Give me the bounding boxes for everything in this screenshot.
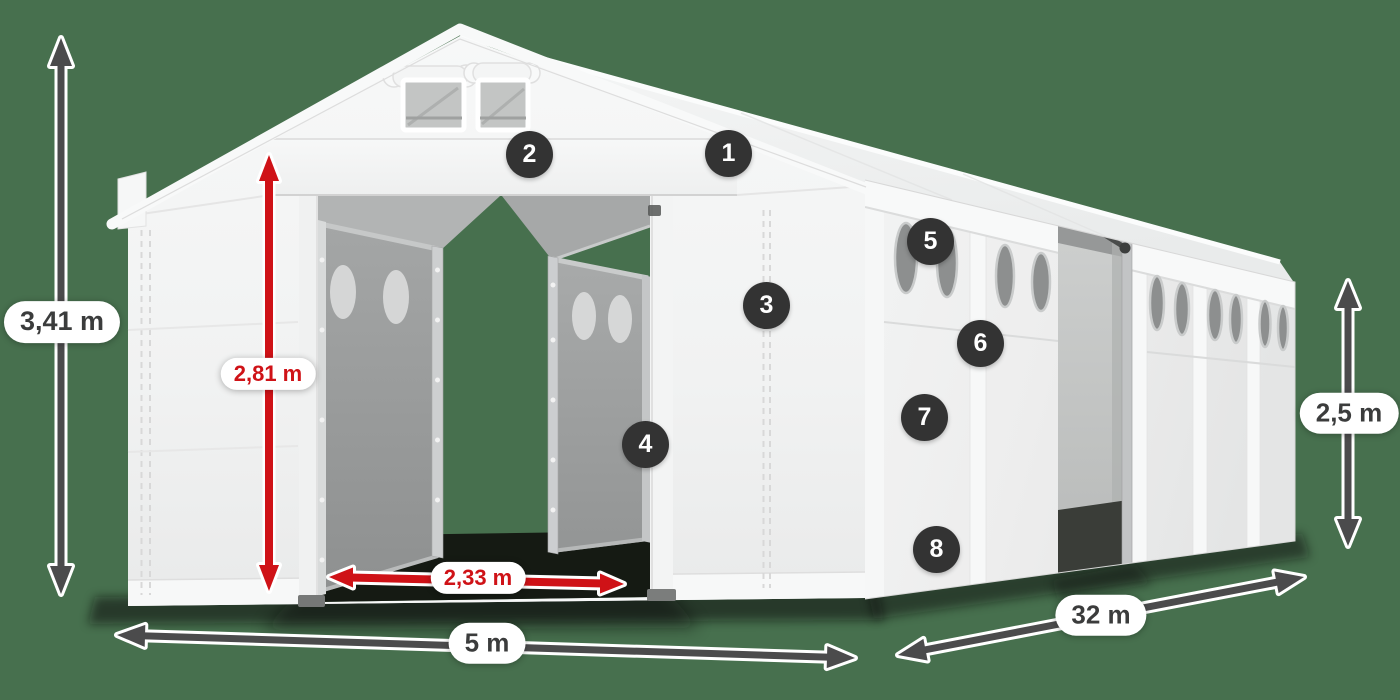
dimension-label-side-height: 2,5 m bbox=[1300, 393, 1399, 434]
post-foot bbox=[647, 589, 676, 601]
door-oval-window bbox=[572, 292, 596, 340]
right-door-panel bbox=[548, 256, 652, 554]
product-diagram: 3,41 m 2,81 m 2,33 m 5 m 32 m 2,5 m 1 2 … bbox=[0, 0, 1400, 700]
callout-badge-8: 8 bbox=[913, 526, 960, 573]
front-doorway bbox=[298, 196, 676, 607]
callout-badge-5: 5 bbox=[907, 218, 954, 265]
door-oval-window bbox=[608, 295, 632, 343]
dimension-label-door-height: 2,81 m bbox=[221, 358, 316, 390]
door-pole bbox=[432, 246, 443, 558]
left-door-panel bbox=[318, 220, 443, 596]
callout-badge-4: 4 bbox=[622, 421, 669, 468]
dimension-label-front-width: 5 m bbox=[449, 623, 526, 664]
callout-badge-7: 7 bbox=[901, 394, 948, 441]
dimension-label-door-width: 2,33 m bbox=[431, 562, 526, 594]
door-oval-window bbox=[383, 270, 409, 324]
dimension-label-length: 32 m bbox=[1055, 595, 1146, 636]
post-foot bbox=[298, 595, 325, 607]
callout-badge-3: 3 bbox=[743, 282, 790, 329]
callout-badge-1: 1 bbox=[705, 130, 752, 177]
tent-illustration bbox=[0, 0, 1400, 700]
corner-strip bbox=[865, 180, 884, 601]
callout-badge-6: 6 bbox=[957, 320, 1004, 367]
side-doorway bbox=[1058, 226, 1132, 585]
side-door-pole bbox=[1122, 240, 1132, 567]
dimension-label-total-height: 3,41 m bbox=[4, 301, 120, 343]
door-hinge-pole bbox=[318, 220, 326, 596]
callout-badge-2: 2 bbox=[506, 131, 553, 178]
door-oval-window bbox=[330, 265, 356, 319]
